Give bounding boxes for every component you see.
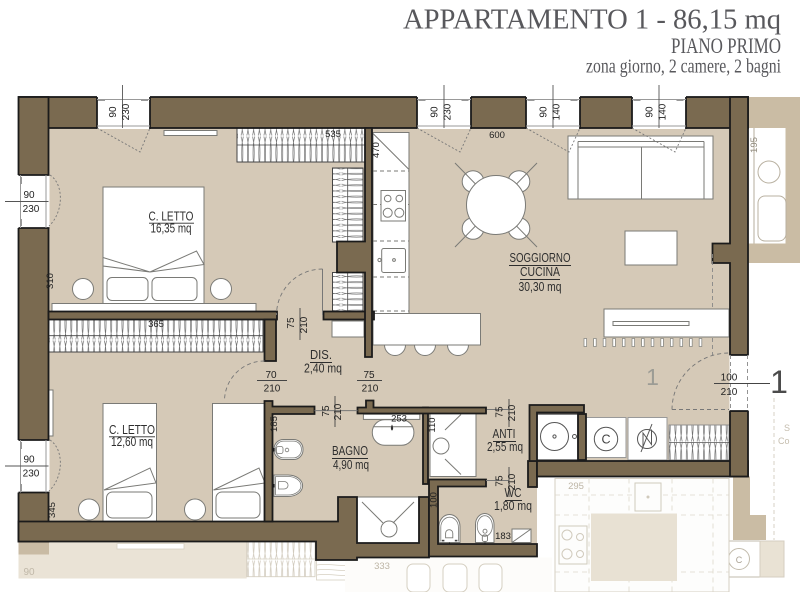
svg-text:PIANO PRIMO: PIANO PRIMO — [671, 33, 781, 58]
svg-text:70: 70 — [265, 370, 277, 381]
svg-text:230: 230 — [23, 204, 40, 215]
svg-text:230: 230 — [443, 103, 454, 120]
svg-text:345: 345 — [47, 502, 58, 518]
svg-text:1: 1 — [646, 364, 659, 390]
svg-text:210: 210 — [362, 384, 379, 395]
svg-text:CUCINA: CUCINA — [520, 264, 560, 279]
svg-text:365: 365 — [148, 319, 164, 330]
svg-text:183: 183 — [495, 531, 511, 542]
svg-text:90: 90 — [645, 106, 656, 118]
svg-text:30,30 mq: 30,30 mq — [519, 279, 562, 294]
svg-text:75: 75 — [495, 406, 506, 418]
svg-text:2,55 mq: 2,55 mq — [487, 439, 523, 454]
svg-text:535: 535 — [325, 129, 341, 140]
svg-text:185: 185 — [269, 416, 280, 432]
svg-text:S: S — [784, 423, 790, 433]
svg-text:zona giorno, 2 camere, 2 bagni: zona giorno, 2 camere, 2 bagni — [586, 57, 781, 78]
svg-text:2,40 mq: 2,40 mq — [304, 361, 342, 376]
svg-text:100: 100 — [429, 492, 440, 508]
svg-text:600: 600 — [489, 130, 505, 141]
svg-text:310: 310 — [45, 273, 56, 289]
svg-text:195: 195 — [749, 137, 760, 153]
svg-text:75: 75 — [286, 317, 297, 329]
svg-text:295: 295 — [568, 481, 584, 492]
svg-text:12,60 mq: 12,60 mq — [111, 434, 153, 449]
svg-text:Co: Co — [778, 436, 790, 446]
svg-text:75: 75 — [363, 370, 375, 381]
svg-text:90: 90 — [108, 106, 119, 118]
svg-text:333: 333 — [374, 561, 390, 572]
svg-text:230: 230 — [121, 103, 132, 120]
svg-text:90: 90 — [23, 455, 35, 466]
svg-text:210: 210 — [721, 387, 738, 398]
svg-text:110: 110 — [427, 417, 438, 432]
svg-text:140: 140 — [658, 103, 669, 120]
svg-text:210: 210 — [264, 384, 281, 395]
svg-text:C: C — [601, 433, 610, 447]
svg-text:90: 90 — [430, 106, 441, 118]
svg-text:BAGNO: BAGNO — [332, 443, 368, 458]
svg-text:APPARTAMENTO 1 - 86,15 mq: APPARTAMENTO 1 - 86,15 mq — [403, 4, 781, 36]
svg-text:16,35 mq: 16,35 mq — [151, 220, 192, 235]
svg-text:210: 210 — [333, 403, 344, 420]
svg-text:210: 210 — [299, 316, 310, 333]
svg-text:100: 100 — [721, 373, 738, 384]
svg-text:C: C — [736, 555, 743, 565]
svg-text:90: 90 — [539, 106, 550, 118]
svg-text:1,80 mq: 1,80 mq — [494, 498, 532, 513]
svg-text:75: 75 — [321, 405, 332, 417]
svg-text:1: 1 — [770, 364, 788, 400]
svg-text:4,90 mq: 4,90 mq — [333, 457, 369, 472]
svg-text:90: 90 — [23, 190, 35, 201]
svg-text:210: 210 — [507, 404, 518, 421]
svg-text:90: 90 — [23, 567, 35, 578]
svg-text:470: 470 — [371, 142, 382, 158]
svg-text:140: 140 — [552, 103, 563, 120]
svg-text:SOGGIORNO: SOGGIORNO — [510, 250, 571, 265]
svg-text:253: 253 — [391, 414, 407, 425]
svg-text:230: 230 — [23, 469, 40, 480]
